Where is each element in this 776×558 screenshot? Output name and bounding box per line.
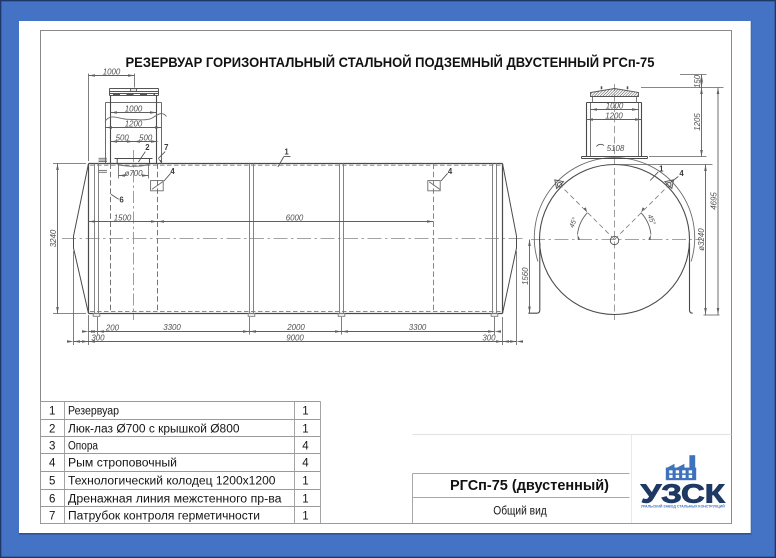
- svg-text:4695: 4695: [710, 192, 719, 210]
- svg-text:1000: 1000: [103, 67, 121, 76]
- svg-text:2: 2: [49, 424, 55, 436]
- svg-text:2: 2: [145, 143, 150, 152]
- svg-text:6: 6: [49, 494, 55, 506]
- svg-text:1: 1: [284, 147, 289, 156]
- svg-text:1200: 1200: [125, 119, 143, 128]
- svg-text:ø3240: ø3240: [697, 228, 706, 251]
- svg-text:1: 1: [659, 164, 664, 173]
- svg-text:Опора: Опора: [68, 441, 99, 453]
- svg-text:4: 4: [679, 169, 684, 178]
- svg-text:1: 1: [302, 494, 308, 506]
- svg-text:1560: 1560: [521, 267, 530, 285]
- svg-text:Дренажная линия межстенного пр: Дренажная линия межстенного пр-ва: [68, 494, 282, 506]
- svg-text:УРАЛЬСКИЙ ЗАВОД СТАЛЬНЫХ КОНСТ: УРАЛЬСКИЙ ЗАВОД СТАЛЬНЫХ КОНСТРУКЦИЙ: [641, 504, 725, 509]
- svg-text:3240: 3240: [49, 229, 58, 247]
- svg-text:6000: 6000: [286, 213, 304, 222]
- svg-text:1: 1: [302, 476, 308, 488]
- svg-text:1205: 1205: [693, 113, 702, 131]
- svg-text:1500: 1500: [114, 213, 132, 222]
- svg-text:9000: 9000: [286, 333, 304, 342]
- svg-text:1: 1: [49, 406, 55, 418]
- svg-text:Технологический колодец 1200х1: Технологический колодец 1200х1200: [68, 476, 276, 488]
- svg-text:1: 1: [302, 511, 308, 523]
- svg-text:300: 300: [91, 333, 105, 342]
- svg-text:5: 5: [49, 476, 55, 488]
- svg-text:5108: 5108: [607, 144, 625, 153]
- svg-text:200: 200: [105, 323, 120, 332]
- svg-text:1000: 1000: [125, 104, 143, 113]
- svg-text:Патрубок контроля герметичност: Патрубок контроля герметичности: [68, 511, 260, 523]
- svg-text:Люк-лаз Ø700 с крышкой Ø800: Люк-лаз Ø700 с крышкой Ø800: [68, 424, 240, 436]
- svg-text:1000: 1000: [606, 101, 624, 110]
- svg-text:1200: 1200: [605, 111, 623, 120]
- svg-text:3: 3: [49, 441, 55, 453]
- svg-text:4: 4: [49, 458, 56, 470]
- svg-text:Резервуар: Резервуар: [68, 406, 119, 418]
- svg-text:1: 1: [302, 424, 308, 436]
- svg-text:7: 7: [164, 143, 168, 152]
- svg-text:1: 1: [302, 406, 308, 418]
- svg-text:500: 500: [139, 133, 153, 142]
- svg-text:7: 7: [49, 511, 55, 523]
- svg-text:150: 150: [693, 74, 702, 88]
- svg-text:6: 6: [119, 196, 124, 205]
- svg-text:РЕЗЕРВУАР ГОРИЗОНТАЛЬНЫЙ СТАЛЬ: РЕЗЕРВУАР ГОРИЗОНТАЛЬНЫЙ СТАЛЬНОЙ ПОДЗЕМ…: [126, 55, 656, 70]
- svg-text:500: 500: [116, 133, 130, 142]
- svg-text:4: 4: [302, 441, 309, 453]
- svg-text:3300: 3300: [409, 323, 427, 332]
- svg-text:2000: 2000: [286, 323, 305, 332]
- svg-text:ø700: ø700: [125, 169, 144, 178]
- svg-text:4: 4: [302, 458, 309, 470]
- svg-text:РГСп-75 (двустенный): РГСп-75 (двустенный): [450, 478, 609, 494]
- svg-text:4: 4: [448, 167, 453, 176]
- svg-text:300: 300: [482, 333, 496, 342]
- svg-text:3300: 3300: [163, 323, 181, 332]
- svg-text:Общий вид: Общий вид: [493, 504, 547, 518]
- svg-text:Рым строповочный: Рым строповочный: [68, 458, 177, 470]
- svg-text:4: 4: [170, 167, 175, 176]
